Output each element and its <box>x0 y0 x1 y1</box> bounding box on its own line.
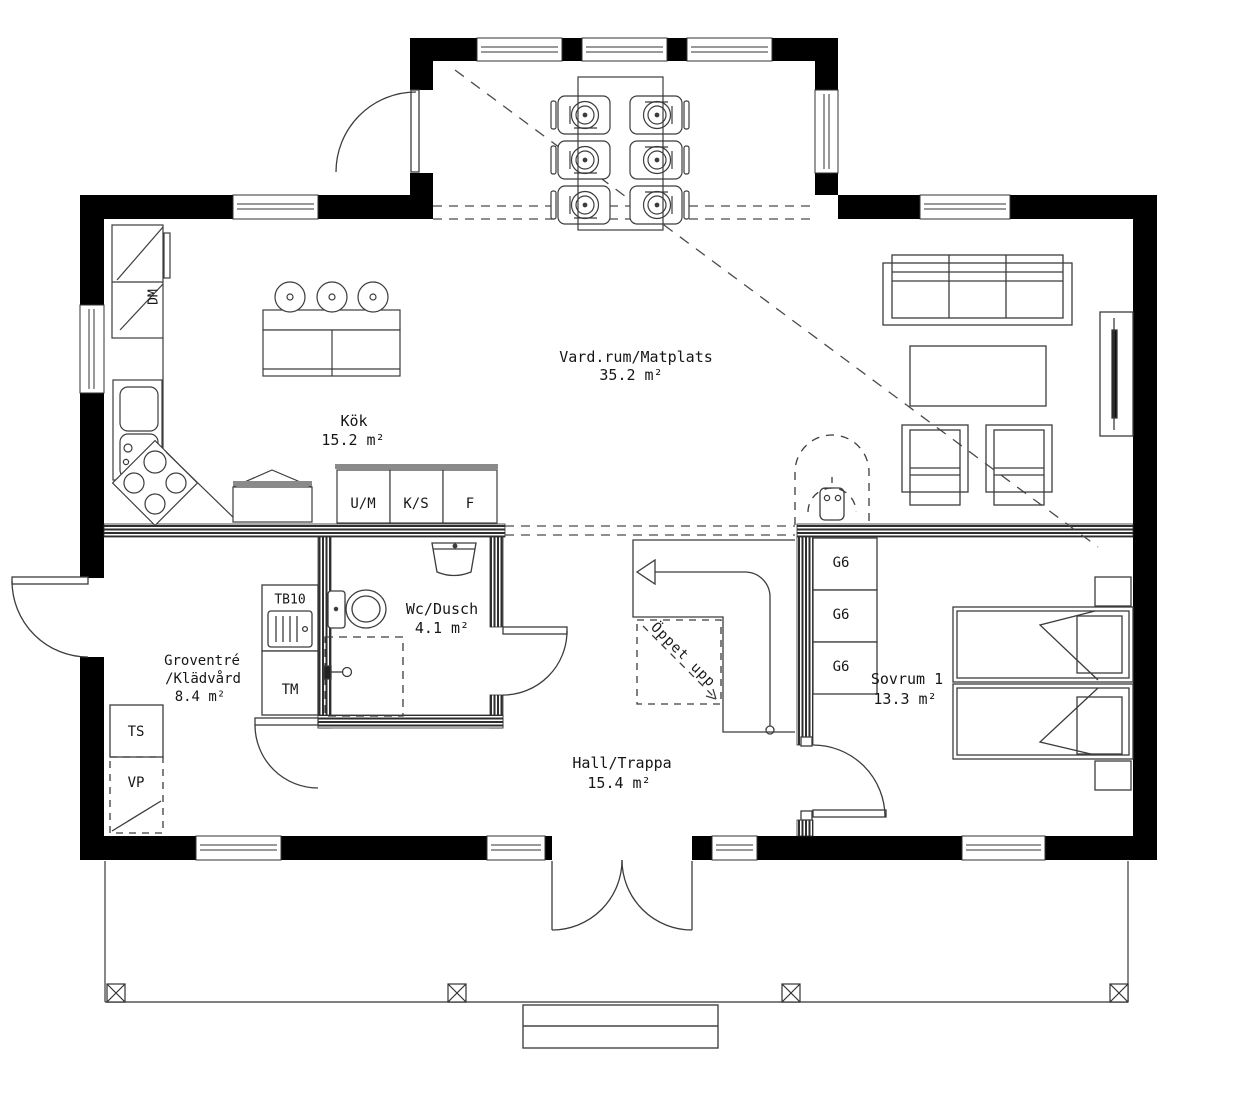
window-hall-right <box>712 836 757 860</box>
room-area-kitchen: 15.2 m² <box>321 431 384 449</box>
door-bay-terrace <box>336 90 419 172</box>
door-utility-exterior <box>12 577 88 657</box>
exterior-walls <box>80 38 1157 860</box>
label-tb10: TB10 <box>274 593 305 608</box>
label-um: U/M <box>350 496 375 512</box>
stair-walk-line <box>637 560 774 734</box>
coffee-table <box>910 346 1046 406</box>
porch-posts <box>107 984 1128 1002</box>
label-tm: TM <box>282 682 299 698</box>
floor-plan: Vard.rum/Matplats 35.2 m² Kök 15.2 m² Gr… <box>0 0 1236 1114</box>
bar-stool-2 <box>317 282 347 312</box>
room-label-wc: Wc/Dusch <box>406 600 478 618</box>
label-oppet-upp: Öppet upp <box>647 618 720 691</box>
label-g6-3: G6 <box>833 659 850 675</box>
heat-pump-vp <box>110 757 163 833</box>
window-utility-bottom <box>196 836 281 860</box>
room-label-living: Vard.rum/Matplats <box>559 348 713 366</box>
armchair-2 <box>986 425 1052 505</box>
room-label-kitchen: Kök <box>340 412 367 430</box>
corner-cabinet <box>233 470 312 522</box>
floor-plan-drawing: Vard.rum/Matplats 35.2 m² Kök 15.2 m² Gr… <box>0 0 1236 1114</box>
sofa <box>883 255 1072 325</box>
label-f: F <box>466 496 474 512</box>
label-vp: VP <box>128 775 145 791</box>
window-kitchen-left <box>80 305 104 393</box>
label-ts: TS <box>128 724 145 740</box>
shower <box>325 637 403 716</box>
door-utility-hall <box>255 718 318 788</box>
room-area-wc: 4.1 m² <box>415 619 469 637</box>
shower-tap-icon <box>324 666 352 679</box>
room-label-utility-2: /Klädvård <box>165 670 241 687</box>
label-ks: K/S <box>403 496 428 512</box>
room-area-living: 35.2 m² <box>599 366 662 384</box>
room-area-bedroom: 13.3 m² <box>873 690 936 708</box>
window-living-top <box>920 195 1010 219</box>
living-room-furniture <box>795 255 1133 525</box>
dining-set <box>551 77 689 230</box>
room-label-utility-1: Groventré <box>164 653 240 669</box>
armchair-1 <box>902 425 968 505</box>
toilet <box>328 590 386 628</box>
window-bedroom-bottom <box>962 836 1045 860</box>
label-dm: DM <box>147 289 162 305</box>
room-label-bedroom: Sovrum 1 <box>871 670 943 688</box>
room-area-utility: 8.4 m² <box>175 689 226 705</box>
bed-2 <box>953 684 1133 759</box>
nightstand-2 <box>1095 761 1131 790</box>
utility-fittings <box>110 585 318 833</box>
window-bay-3 <box>687 38 772 61</box>
tv-bench <box>1100 312 1133 436</box>
fireplace <box>795 435 869 525</box>
wash-basin <box>432 543 476 576</box>
kitchen-island <box>263 282 400 376</box>
bedroom-furniture <box>813 538 1133 790</box>
window-hall-left <box>487 836 545 860</box>
door-wc <box>503 627 567 695</box>
door-main-entrance <box>552 860 692 930</box>
fridge-freezer-cabinets <box>112 225 170 338</box>
window-bay-2 <box>582 38 667 61</box>
bar-stool-3 <box>358 282 388 312</box>
label-g6-2: G6 <box>833 607 850 623</box>
label-g6-1: G6 <box>833 555 850 571</box>
bed-1 <box>953 607 1133 682</box>
bar-stool-1 <box>275 282 305 312</box>
kitchen-fittings <box>112 225 498 525</box>
nightstand-1 <box>1095 577 1131 606</box>
room-label-hall: Hall/Trappa <box>572 754 671 772</box>
window-bay-1 <box>477 38 562 61</box>
door-bedroom <box>801 737 886 820</box>
entry-steps <box>523 1005 718 1048</box>
room-area-hall: 15.4 m² <box>587 774 650 792</box>
window-bay-right <box>815 90 838 173</box>
window-kitchen-top <box>233 195 318 219</box>
